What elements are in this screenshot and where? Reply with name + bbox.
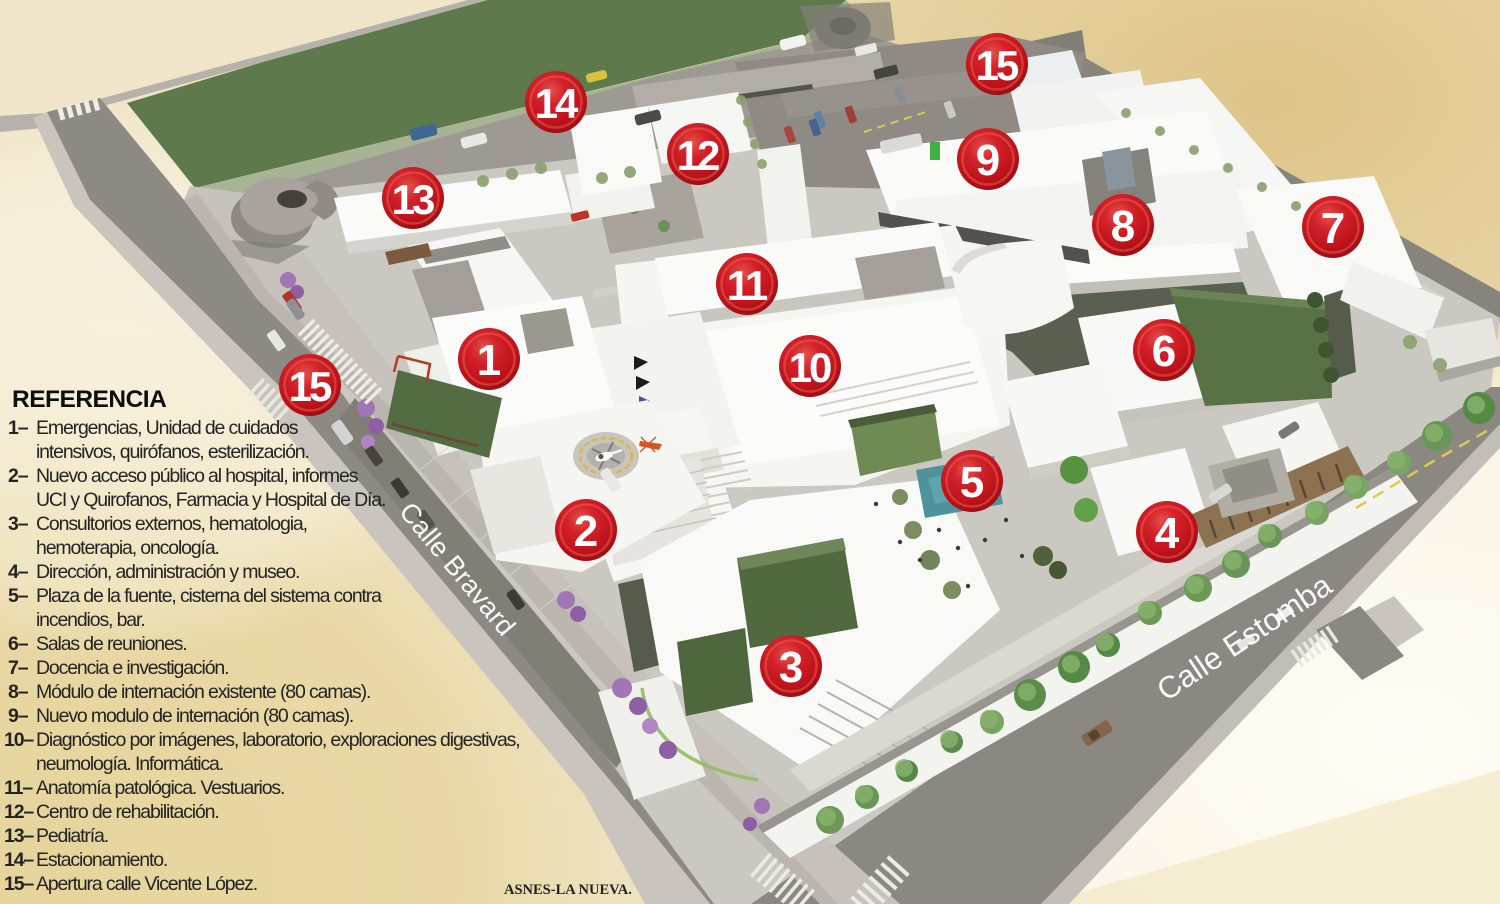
svg-text:9: 9: [976, 136, 1000, 185]
svg-text:4–Dirección, administración y: 4–Dirección, administración y museo.: [8, 561, 299, 583]
svg-text:8–Módulo de internación existe: 8–Módulo de internación existente (80 ca…: [8, 681, 370, 703]
svg-text:15: 15: [976, 42, 1019, 89]
svg-text:UCI y Quirofanos, Farmacia y H: UCI y Quirofanos, Farmacia y Hospital de…: [36, 489, 385, 511]
svg-text:7: 7: [1321, 204, 1345, 253]
svg-text:neumología. Informática.: neumología. Informática.: [36, 753, 223, 775]
svg-text:15: 15: [289, 363, 332, 410]
svg-text:11–Anatomía patológica. Vestua: 11–Anatomía patológica. Vestuarios.: [4, 777, 284, 799]
svg-text:5: 5: [960, 458, 984, 507]
svg-text:15–Apertura calle Vicente Lópe: 15–Apertura calle Vicente López.: [4, 873, 257, 895]
svg-text:1–Emergencias, Unidad de cuida: 1–Emergencias, Unidad de cuidados: [8, 417, 299, 439]
svg-text:8: 8: [1111, 202, 1135, 251]
svg-text:incendios, bar.: incendios, bar.: [36, 609, 145, 631]
svg-text:2–Nuevo acceso público al hosp: 2–Nuevo acceso público al hospital, info…: [8, 465, 359, 487]
svg-text:intensivos, quirófanos, esteri: intensivos, quirófanos, esterilización.: [36, 441, 309, 463]
svg-text:hemoterapia, oncología.: hemoterapia, oncología.: [36, 537, 219, 559]
svg-text:13–Pediatría.: 13–Pediatría.: [4, 825, 108, 847]
svg-text:12: 12: [677, 132, 719, 179]
svg-text:2: 2: [574, 507, 598, 556]
svg-text:10–Diagnóstico por imágenes, l: 10–Diagnóstico por imágenes, laboratorio…: [4, 729, 520, 751]
svg-text:14: 14: [535, 80, 579, 127]
svg-text:12–Centro de rehabilitación.: 12–Centro de rehabilitación.: [4, 801, 219, 823]
svg-text:6: 6: [1152, 327, 1176, 376]
svg-text:5–Plaza de la fuente, cisterna: 5–Plaza de la fuente, cisterna del siste…: [8, 585, 382, 607]
svg-text:ASNES-LA NUEVA.: ASNES-LA NUEVA.: [504, 882, 632, 898]
svg-text:4: 4: [1155, 509, 1180, 558]
svg-text:3–Consultorios externos, hemat: 3–Consultorios externos, hematologia,: [8, 513, 307, 535]
svg-text:1: 1: [477, 336, 501, 385]
svg-text:14–Estacionamiento.: 14–Estacionamiento.: [4, 849, 167, 871]
svg-text:3: 3: [779, 643, 803, 692]
svg-text:9–Nuevo modulo de internación: 9–Nuevo modulo de internación (80 camas)…: [8, 705, 353, 727]
svg-text:13: 13: [392, 176, 434, 223]
svg-text:7–Docencia e investigación.: 7–Docencia e investigación.: [8, 657, 228, 679]
svg-text:10: 10: [789, 344, 831, 391]
svg-text:11: 11: [727, 262, 768, 309]
svg-text:REFERENCIA: REFERENCIA: [12, 386, 167, 413]
